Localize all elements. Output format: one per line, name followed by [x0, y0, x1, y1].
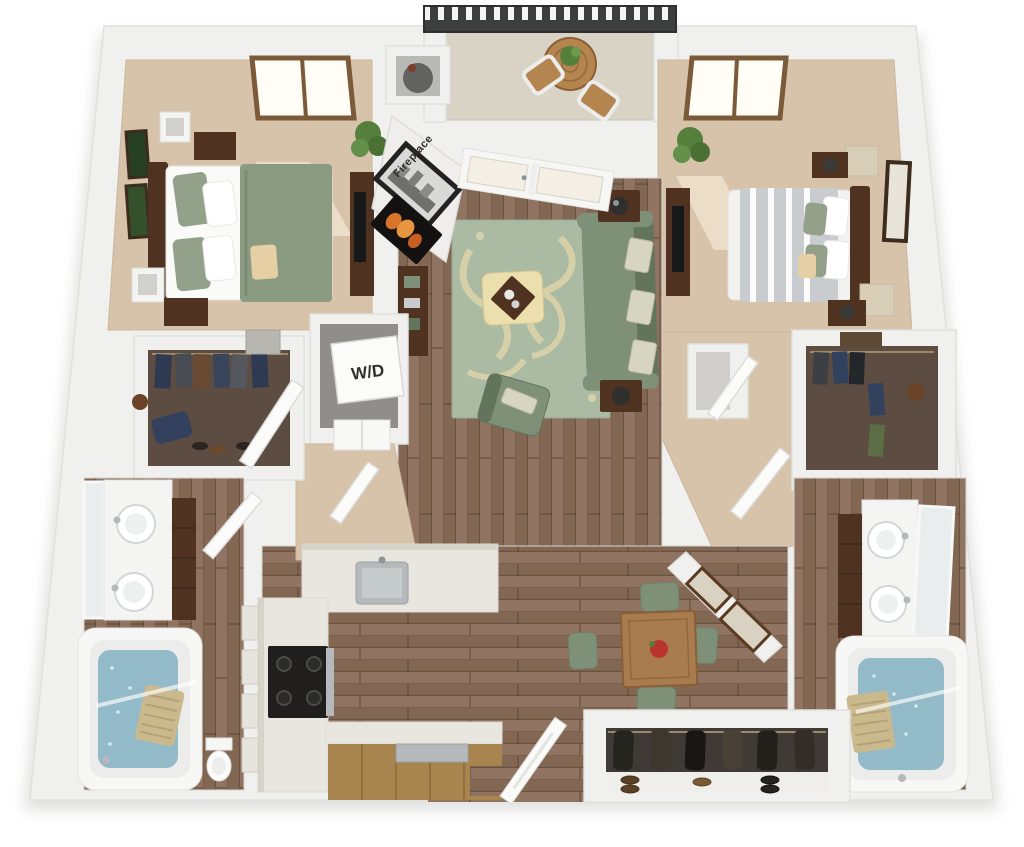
bath2-faucet-1: [902, 533, 909, 540]
utility-niche: [386, 46, 450, 104]
bathroom-1: [78, 478, 262, 790]
bedroom2-wall-art: [884, 162, 910, 241]
floorplan-canvas: Fireplace W/D: [0, 0, 1024, 847]
kitchen-backsplash-top: [302, 544, 498, 550]
bath2-sink-1-basin: [876, 530, 896, 550]
bath2-linen-cabinet: [838, 514, 862, 638]
water-heater: [403, 63, 433, 93]
coat-closet-shelf: [606, 772, 828, 794]
bedroom1-tv: [354, 192, 366, 262]
bedroom2-tv: [672, 206, 684, 272]
bath1-mirror: [84, 482, 104, 618]
bed1-pillow-white-2: [202, 235, 236, 282]
bath1-tub: [78, 628, 202, 790]
kitchen-bar-counter: [326, 722, 502, 744]
bedroom-1: [108, 58, 388, 330]
bath1-sink-1-basin: [125, 513, 147, 535]
lamp-bottom: [612, 387, 630, 405]
bed1-duvet: [240, 164, 332, 302]
balcony-plant-leaf: [571, 47, 581, 57]
coat-closet: [584, 710, 850, 802]
ottoman: [482, 270, 545, 325]
bath2-mirror: [913, 506, 954, 638]
bed1-nightstand-top: [194, 132, 236, 160]
bed2-lamp-bottom: [840, 305, 854, 319]
console-decor-1: [404, 276, 420, 288]
closet2-handbag: [907, 383, 925, 401]
dining-chair-top: [640, 582, 679, 612]
bath2-tub: [836, 636, 968, 792]
bath2-faucet-2: [904, 597, 911, 604]
sofa-pillow-2: [626, 289, 655, 325]
balcony: [424, 6, 678, 122]
range-handle: [326, 648, 334, 716]
bath1-toilet: [206, 738, 232, 781]
bed2-throw-pillow: [798, 254, 816, 278]
bath2-tub-faucet: [898, 774, 906, 782]
bath1-tub-faucet: [102, 756, 110, 764]
sofa-pillow-1: [624, 237, 653, 273]
bath1-toilet-tank: [206, 738, 232, 750]
bath2-towel: [846, 690, 896, 753]
bed2-lamp-top: [823, 158, 837, 172]
dining-centerpiece-leaf: [649, 641, 655, 647]
bedroom1-wall-art-2: [126, 185, 150, 238]
closet1-storage-box: [246, 330, 280, 354]
lamp-top-highlight: [613, 200, 619, 206]
niche-plant: [408, 64, 416, 72]
closet2-duffel-bag: [840, 332, 882, 348]
washer-dryer-unit: W/D: [331, 336, 404, 404]
floorplan-image: Fireplace W/D: [0, 0, 1024, 847]
kitchen-backsplash-left: [258, 598, 264, 792]
bath2-sink-2-basin: [878, 594, 898, 614]
bed1-pillow-white-1: [202, 180, 238, 228]
kitchen-sink: [356, 557, 408, 605]
bed2-pillow-sage-1: [803, 202, 828, 236]
kitchen-faucet: [379, 557, 386, 564]
walkin-closet-1: [132, 330, 304, 480]
sofa-pillow-3: [628, 339, 657, 375]
bed1-cube-shelf-top-inner: [166, 118, 184, 136]
range: [268, 646, 334, 718]
bath1-faucet-2: [112, 585, 119, 592]
bed1-throw-pillow: [250, 244, 278, 280]
bath1-linen-cabinet: [172, 498, 196, 620]
bed2-cube-shelf-top: [846, 146, 878, 176]
balcony-railing: [424, 6, 676, 32]
bedroom1-wall-art-1: [126, 131, 149, 178]
washer-dryer-label: W/D: [350, 361, 385, 384]
range-top: [268, 646, 328, 718]
lamp-top: [610, 197, 628, 215]
dishwasher: [396, 744, 468, 762]
bed1-nightstand-bottom: [164, 298, 208, 326]
bath1-faucet-1: [114, 517, 121, 524]
bath1-toilet-seat: [212, 757, 226, 775]
bed1-cube-shelf-bottom-inner: [138, 274, 157, 295]
sofa: [577, 211, 659, 392]
closet1-handbag: [132, 394, 148, 410]
dining-chair-left: [568, 632, 598, 669]
console-decor-2: [404, 298, 420, 308]
bath1-sink-2-basin: [123, 581, 145, 603]
